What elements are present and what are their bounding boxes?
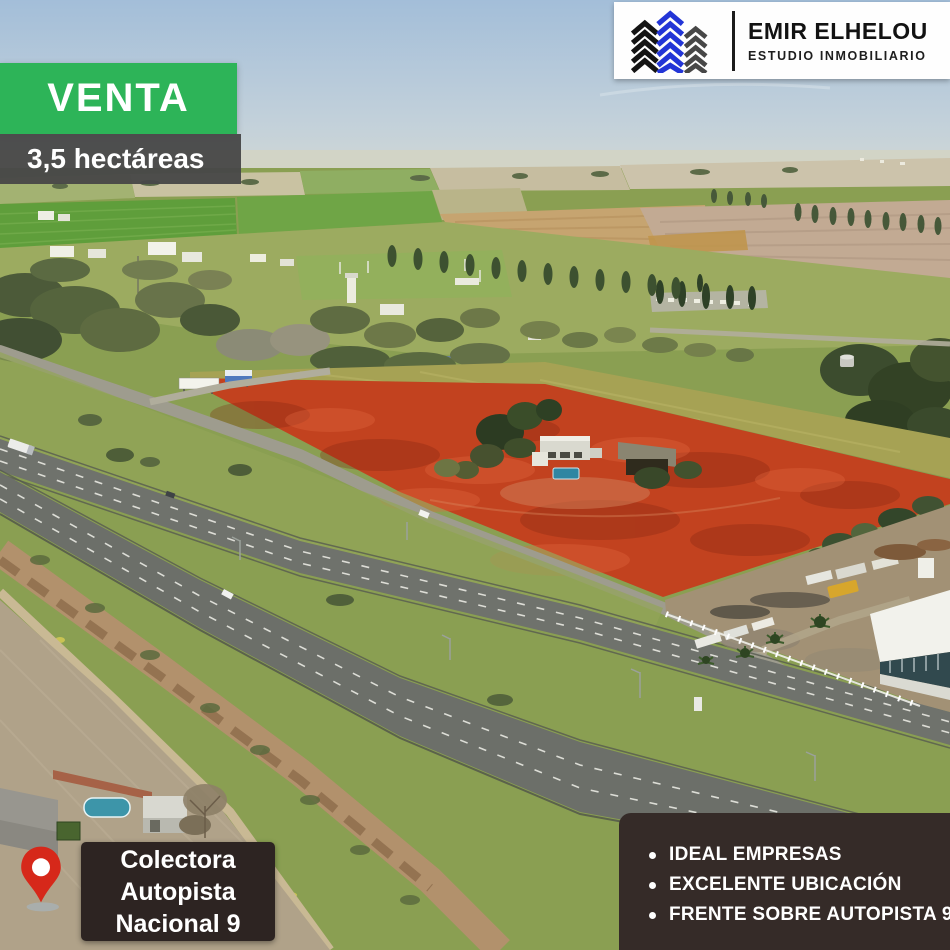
logo-divider [732,11,735,71]
bullet-dot [649,882,656,889]
brand-name: EMIR ELHELOU [748,18,928,45]
brand-subtitle: ESTUDIO INMOBILIARIO [748,49,928,63]
water-tower [347,276,356,303]
bullet-dot [649,912,656,919]
sale-banner: VENTA [0,63,237,134]
feature-label: EXCELENTE UBICACIÓN [669,874,902,896]
bullet-dot [649,852,656,859]
size-banner: 3,5 hectáreas [0,134,241,184]
location-card: Colectora Autopista Nacional 9 [81,842,275,941]
feature-item: IDEAL EMPRESAS [649,844,942,866]
feature-item: EXCELENTE UBICACIÓN [649,874,942,896]
location-line-3: Nacional 9 [115,908,240,940]
location-line-1: Colectora [120,844,235,876]
median-sign [694,697,702,711]
location-line-2: Autopista [120,876,235,908]
brand-card: EMIR ELHELOU ESTUDIO INMOBILIARIO [614,2,950,79]
listing-flyer: VENTA 3,5 hectáreas EMIR ELHELOU ESTUDIO… [0,0,950,950]
feature-label: FRENTE SOBRE AUTOPISTA 9 [669,904,950,926]
feature-label: IDEAL EMPRESAS [669,844,842,866]
map-pin-icon [14,843,68,915]
features-card: IDEAL EMPRESAS EXCELENTE UBICACIÓN FRENT… [619,813,950,950]
buildings-logo-icon [624,9,724,73]
feature-item: FRENTE SOBRE AUTOPISTA 9 [649,904,942,926]
